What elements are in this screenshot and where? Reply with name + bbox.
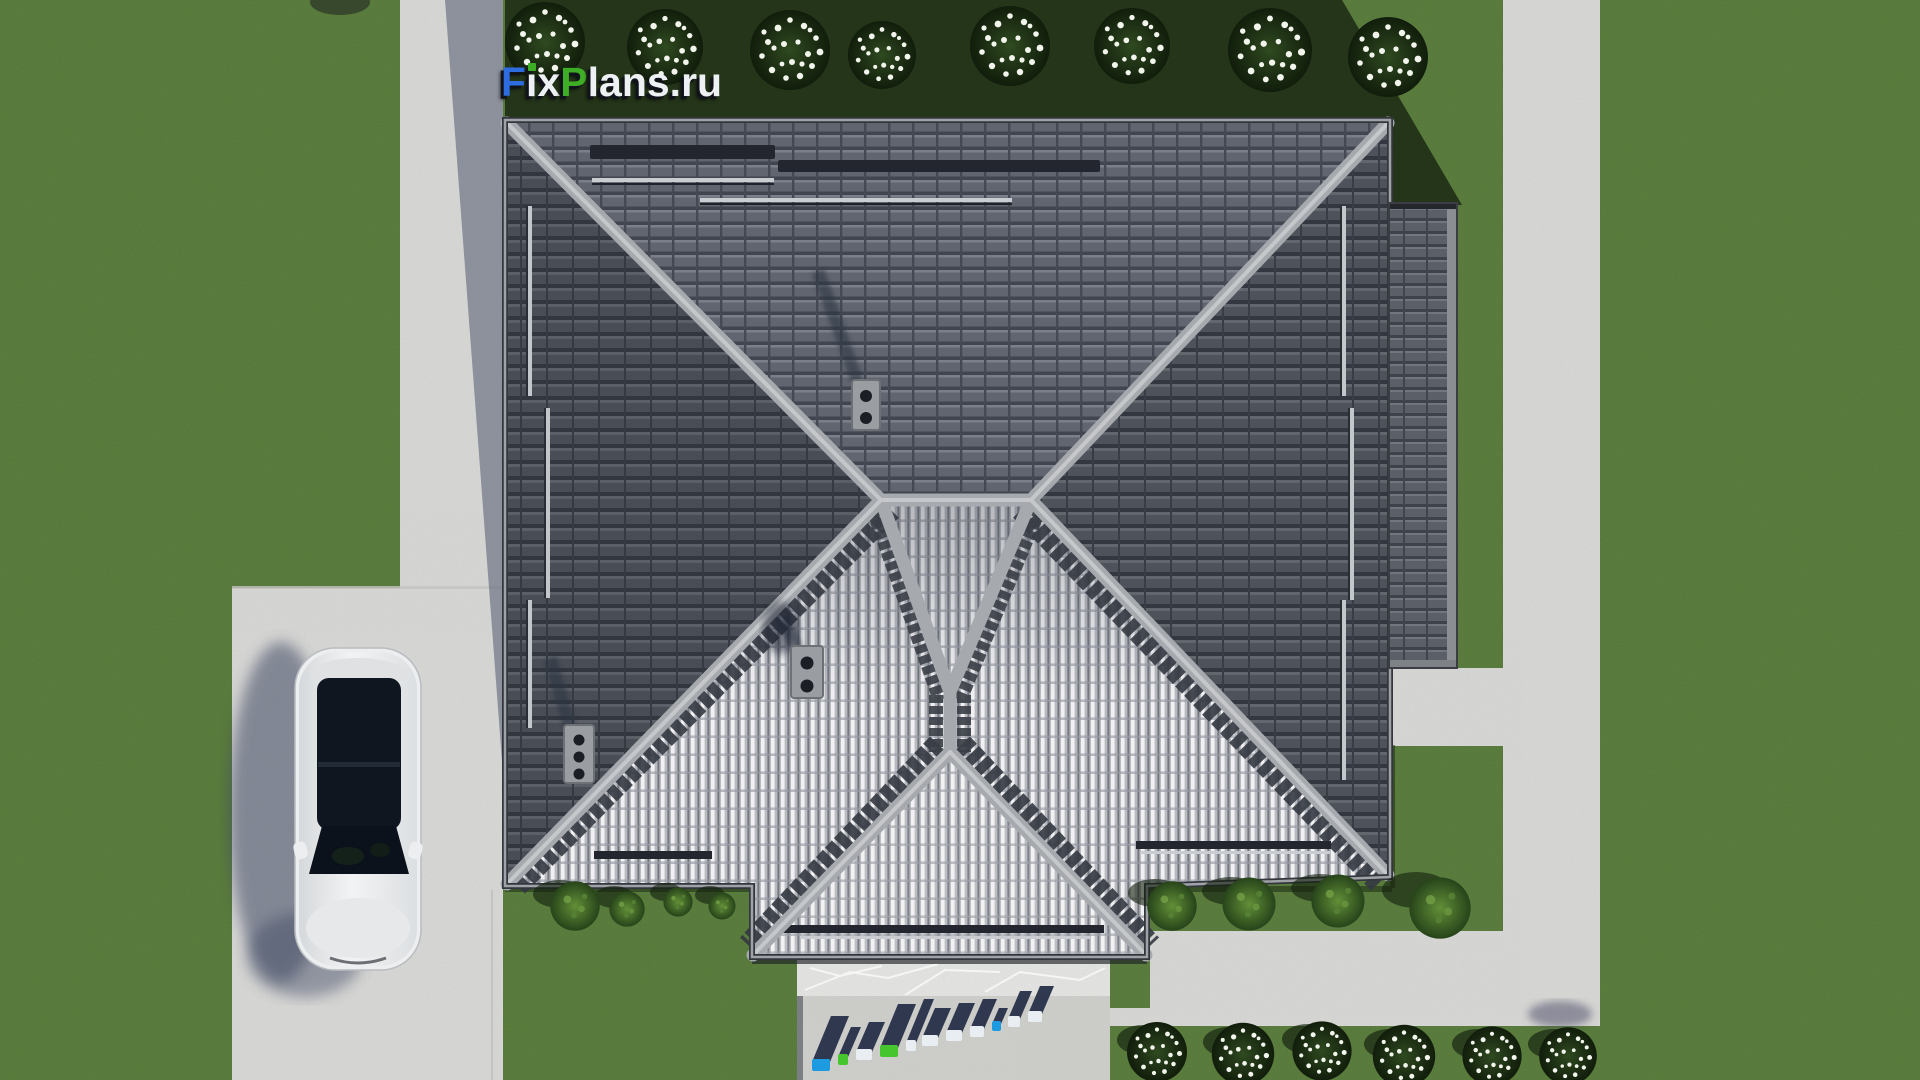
- car-roof-crossbar: [318, 762, 400, 767]
- logo-letter-p: P: [560, 59, 587, 105]
- driveway-curb: [232, 586, 503, 589]
- chimney-vent: [852, 380, 880, 430]
- aerial-house-render: FixPlans.ru: [0, 0, 1920, 1080]
- watermark-logo-top: FixPlans.ru: [501, 62, 722, 103]
- site-plan-canvas: [0, 0, 1920, 1080]
- windshield-reflection: [332, 847, 364, 865]
- chimney-vent: [791, 646, 823, 698]
- car: [292, 648, 424, 970]
- driveway-edge-line: [491, 890, 493, 1080]
- house-roof: [505, 120, 1457, 957]
- windshield-reflection: [370, 843, 390, 857]
- logo-letters-ru: ru: [681, 59, 722, 105]
- annex-roof: [1389, 203, 1457, 668]
- logo-letter-i: i: [526, 59, 537, 105]
- logo-letter-x: x: [537, 59, 560, 105]
- logo-dot: .: [670, 59, 681, 105]
- car-roof-glass: [317, 678, 401, 830]
- car-hood-highlight: [306, 898, 410, 958]
- logo-letter-f: F: [501, 59, 526, 105]
- logo-letters-lans: lans: [588, 59, 670, 105]
- chimney-vent: [564, 725, 594, 783]
